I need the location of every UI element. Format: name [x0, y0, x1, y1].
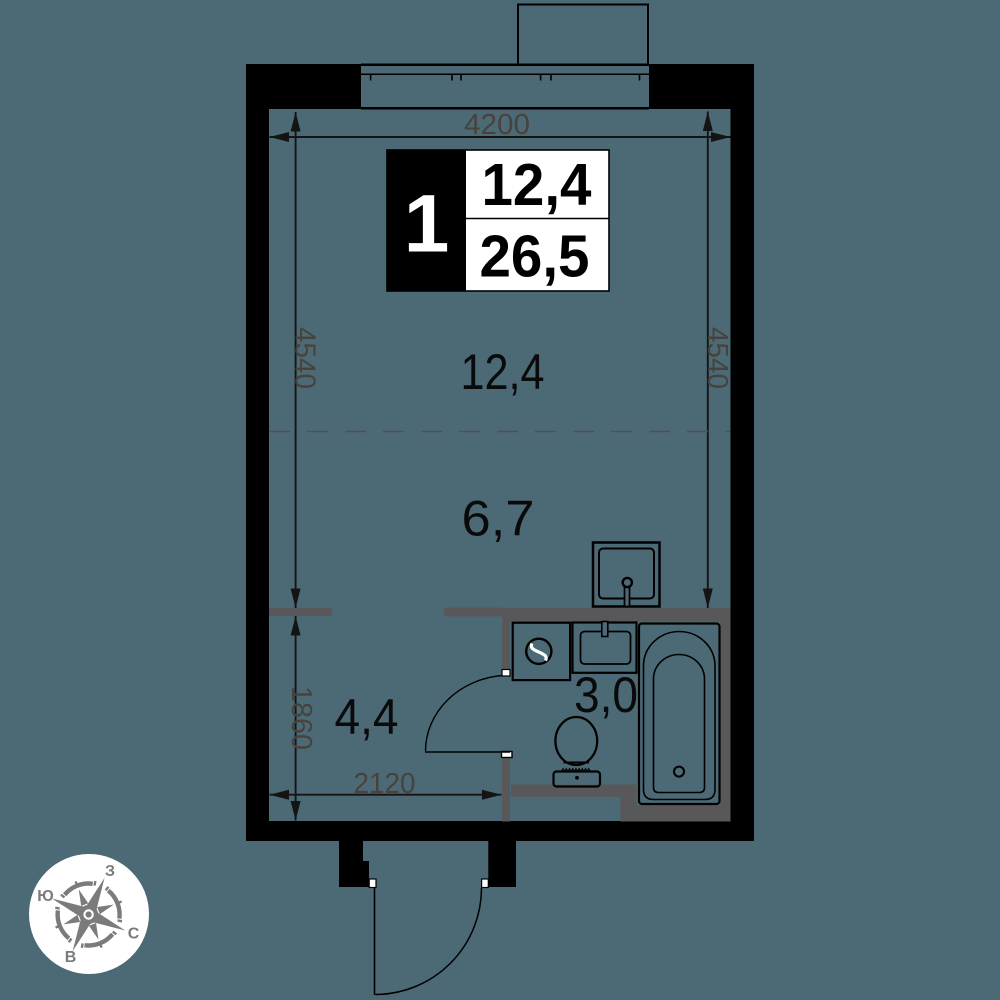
svg-text:4540: 4540	[701, 327, 733, 389]
svg-text:4200: 4200	[464, 109, 530, 141]
svg-text:4,4: 4,4	[335, 689, 399, 745]
svg-text:Ю: Ю	[37, 888, 54, 905]
svg-text:6,7: 6,7	[462, 491, 535, 547]
svg-text:С: С	[128, 926, 140, 943]
svg-text:4540: 4540	[289, 327, 321, 389]
svg-text:1860: 1860	[285, 686, 317, 750]
svg-text:1: 1	[404, 179, 450, 270]
svg-text:В: В	[65, 949, 77, 966]
svg-text:3,0: 3,0	[574, 667, 638, 723]
svg-text:З: З	[105, 863, 115, 880]
svg-text:12,4: 12,4	[461, 344, 545, 400]
svg-text:26,5: 26,5	[480, 224, 590, 290]
svg-text:2120: 2120	[354, 768, 416, 800]
svg-text:12,4: 12,4	[482, 152, 592, 218]
